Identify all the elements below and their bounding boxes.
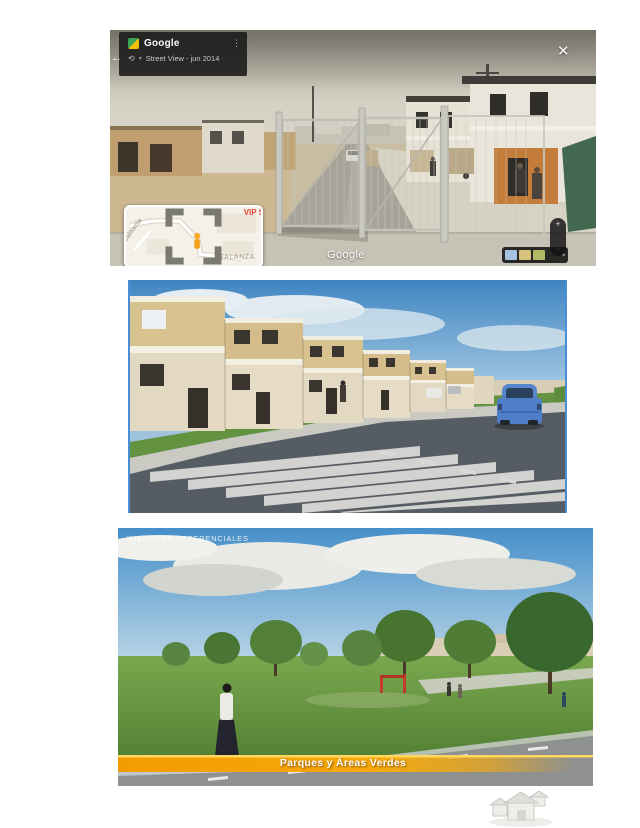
time-machine-control[interactable]: ⟲ ▾ Street View - jun 2014 (119, 50, 247, 63)
streetview-info-panel: Google ⋮ ⟲ ▾ Street View - jun 2014 (119, 32, 247, 76)
overflow-menu-icon[interactable]: ⋮ (232, 39, 241, 48)
imagery-thumbnail-bar: ▪ (502, 247, 568, 263)
close-icon[interactable]: ✕ (557, 42, 570, 60)
streetview-date-label: Street View - jun 2014 (146, 54, 220, 63)
chevron-down-icon: ▾ (139, 55, 142, 62)
google-watermark: Google (327, 249, 365, 261)
imagery-thumbnail[interactable] (533, 250, 545, 260)
streetview-screenshot[interactable]: ← Google ⋮ ⟲ ▾ Street View - jun 2014 ✕ … (110, 30, 596, 266)
render-street-image[interactable] (128, 280, 567, 513)
minimap[interactable]: VIP S BALANZA California C (124, 205, 263, 266)
zoom-in-button[interactable]: + (555, 220, 560, 229)
expand-icon[interactable] (126, 207, 261, 266)
render-park-image[interactable]: IMAGENES REFERENCIALES Parques y Áreas V… (118, 528, 593, 786)
thumbbar-icon[interactable]: ▪ (563, 252, 565, 259)
imagery-thumbnail[interactable] (519, 250, 531, 260)
reference-images-label: IMAGENES REFERENCIALES (127, 534, 249, 543)
render-park-scene (118, 528, 593, 786)
app-name: Google (144, 38, 180, 49)
render-street-scene (130, 280, 565, 513)
imagery-thumbnail[interactable] (505, 250, 517, 260)
banner: Parques y Áreas Verdes (118, 755, 593, 772)
back-icon[interactable]: ← (111, 52, 122, 64)
banner-title: Parques y Áreas Verdes (213, 757, 473, 769)
google-maps-logo-icon (128, 38, 139, 49)
houses-logo-icon (484, 786, 558, 828)
pedestrian (340, 381, 346, 403)
history-icon: ⟲ (128, 54, 135, 63)
houses-logo (484, 786, 558, 828)
